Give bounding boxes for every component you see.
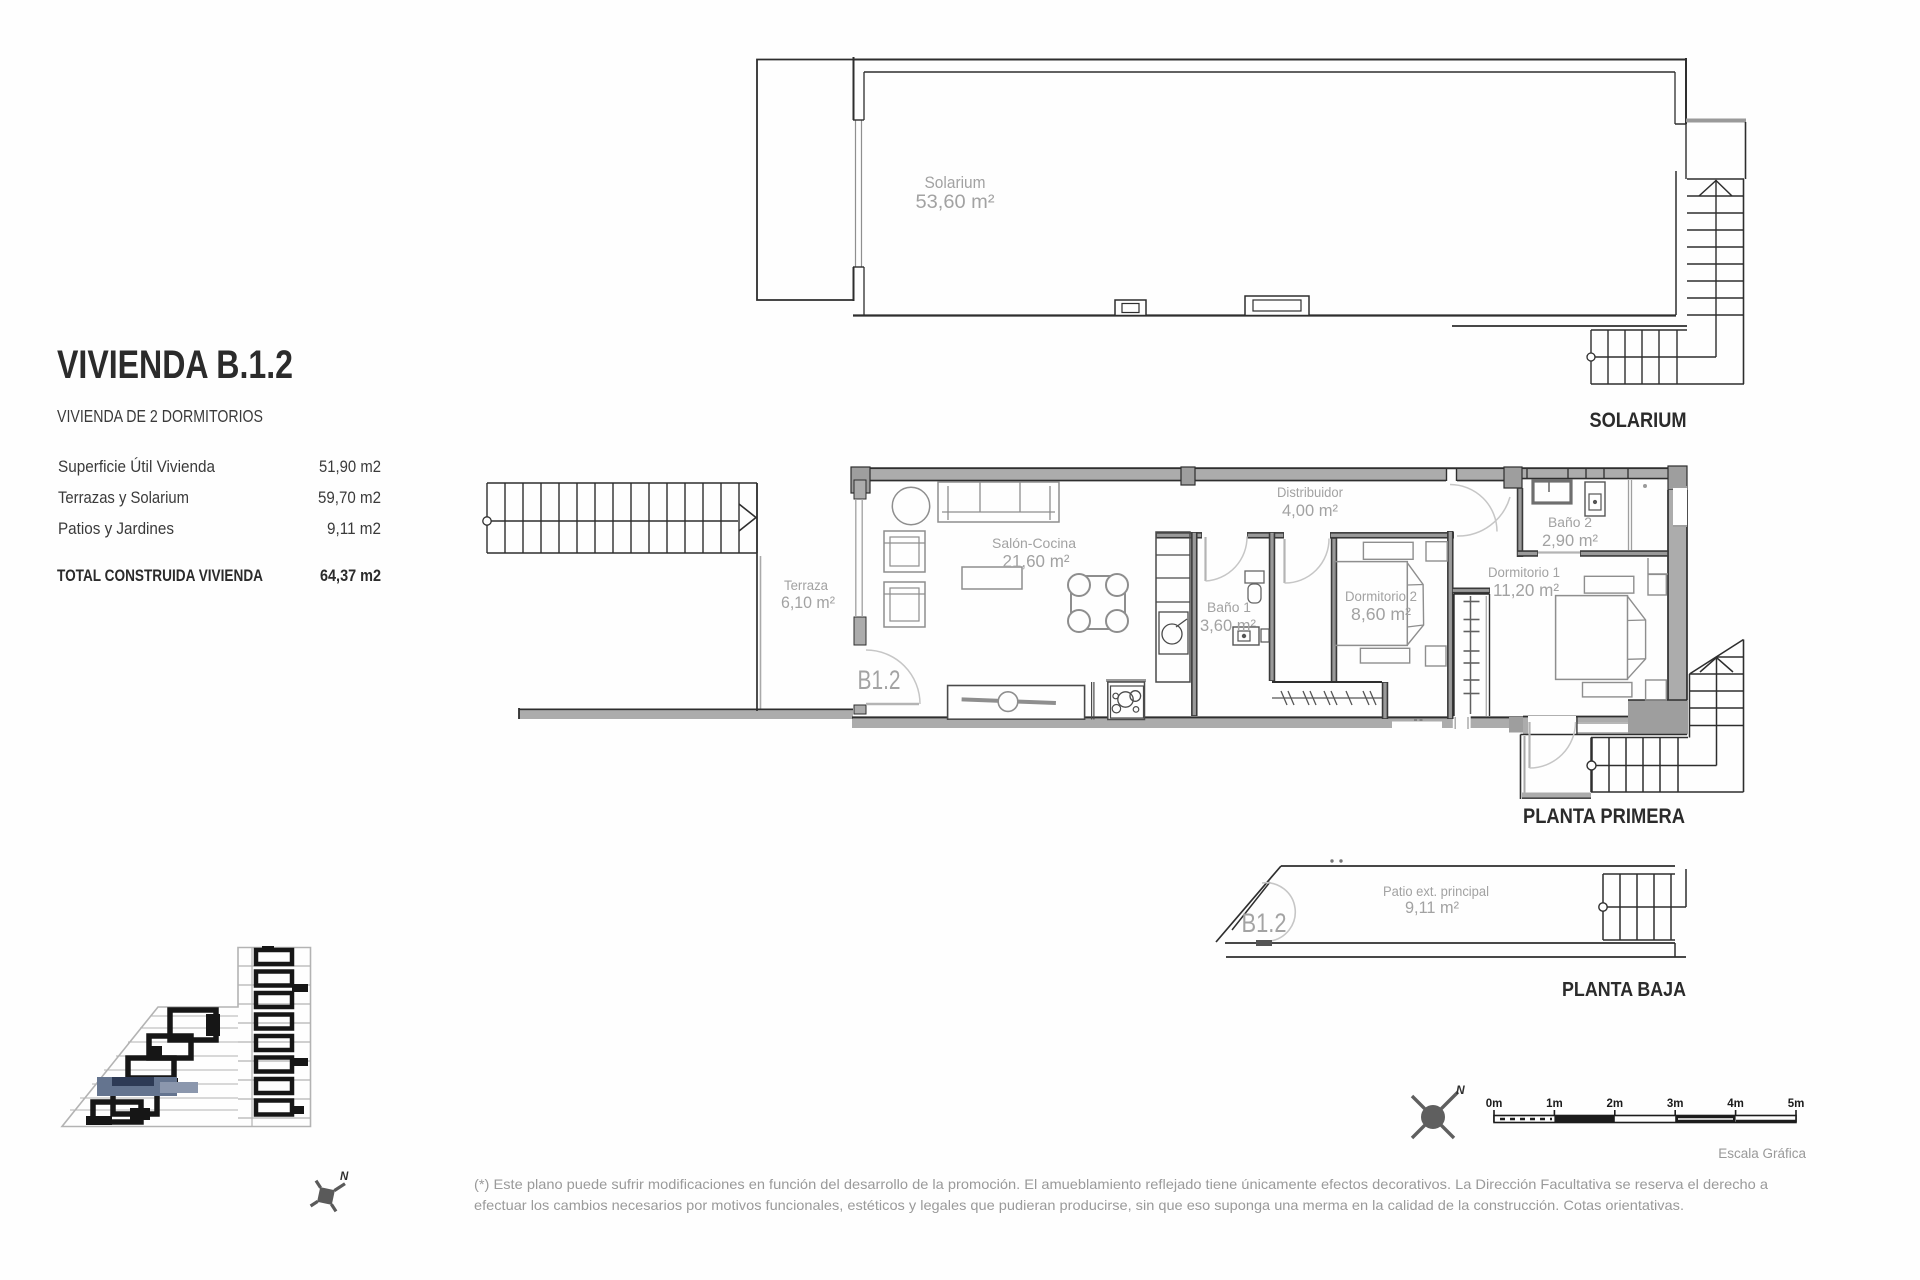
svg-text:N: N	[1456, 1083, 1465, 1097]
svg-text:Superficie Útil Vivienda: Superficie Útil Vivienda	[58, 457, 215, 476]
svg-text:PLANTA PRIMERA: PLANTA PRIMERA	[1523, 805, 1685, 828]
svg-text:9,11 m²: 9,11 m²	[1405, 899, 1459, 917]
svg-text:Dormitorio 1: Dormitorio 1	[1488, 565, 1560, 580]
svg-text:VIVIENDA DE 2 DORMITORIOS: VIVIENDA DE 2 DORMITORIOS	[57, 406, 263, 426]
svg-text:(*) Este plano puede sufrir mo: (*) Este plano puede sufrir modificacion…	[474, 1176, 1768, 1192]
svg-text:2m: 2m	[1606, 1098, 1623, 1110]
svg-text:21,60 m²: 21,60 m²	[1003, 551, 1070, 571]
svg-text:B1.2: B1.2	[1242, 908, 1287, 938]
svg-text:5m: 5m	[1788, 1098, 1805, 1110]
svg-text:Baño 1: Baño 1	[1207, 600, 1251, 615]
svg-text:53,60 m²: 53,60 m²	[916, 192, 995, 213]
svg-text:11,20 m²: 11,20 m²	[1493, 580, 1559, 600]
svg-text:8,60 m²: 8,60 m²	[1351, 604, 1411, 624]
svg-text:4,00 m²: 4,00 m²	[1282, 502, 1339, 520]
svg-text:SOLARIUM: SOLARIUM	[1590, 409, 1687, 432]
svg-text:64,37 m2: 64,37 m2	[320, 566, 381, 585]
svg-text:0m: 0m	[1486, 1098, 1503, 1110]
svg-text:Distribuidor: Distribuidor	[1277, 485, 1343, 500]
svg-text:TOTAL CONSTRUIDA VIVIENDA: TOTAL CONSTRUIDA VIVIENDA	[57, 566, 263, 585]
svg-text:9,11 m2: 9,11 m2	[327, 519, 381, 538]
svg-text:51,90 m2: 51,90 m2	[319, 457, 381, 476]
svg-text:B1.2: B1.2	[858, 665, 901, 695]
svg-text:efectuar los cambios necesario: efectuar los cambios necesarios por moti…	[474, 1197, 1684, 1213]
svg-text:3m: 3m	[1667, 1098, 1684, 1110]
svg-text:Baño 2: Baño 2	[1548, 515, 1592, 530]
svg-text:Terraza: Terraza	[784, 578, 828, 593]
svg-text:4m: 4m	[1727, 1098, 1744, 1110]
svg-text:Terrazas y Solarium: Terrazas y Solarium	[58, 488, 189, 507]
svg-text:Solarium: Solarium	[925, 174, 986, 192]
svg-text:2,90 m²: 2,90 m²	[1542, 532, 1599, 550]
svg-text:Dormitorio 2: Dormitorio 2	[1345, 589, 1417, 604]
svg-text:Escala Gráfica: Escala Gráfica	[1718, 1146, 1806, 1161]
svg-text:PLANTA BAJA: PLANTA BAJA	[1562, 979, 1686, 1001]
svg-text:3,60 m²: 3,60 m²	[1200, 617, 1257, 635]
svg-text:Patio ext. principal: Patio ext. principal	[1383, 884, 1489, 899]
svg-text:Salón-Cocina: Salón-Cocina	[992, 535, 1076, 551]
svg-text:1m: 1m	[1546, 1098, 1563, 1110]
svg-text:VIVIENDA B.1.2: VIVIENDA B.1.2	[57, 343, 293, 387]
svg-text:59,70 m2: 59,70 m2	[318, 488, 381, 507]
svg-text:N: N	[340, 1171, 349, 1183]
svg-text:Patios y Jardines: Patios y Jardines	[58, 519, 174, 538]
svg-text:6,10 m²: 6,10 m²	[781, 594, 835, 612]
